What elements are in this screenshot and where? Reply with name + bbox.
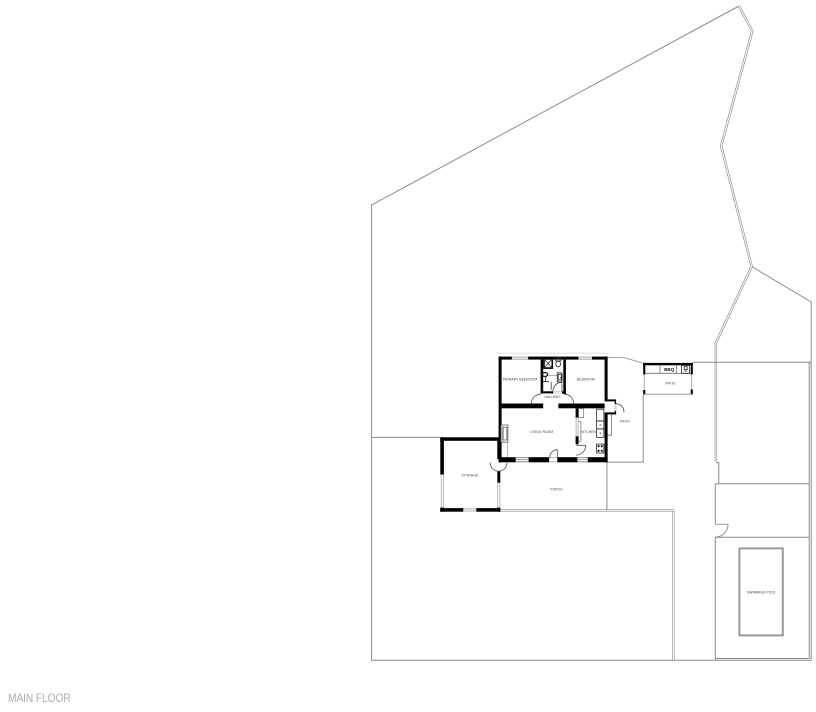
svg-text:KITCHEN: KITCHEN	[581, 430, 597, 434]
svg-text:HALLWAY: HALLWAY	[544, 395, 561, 399]
svg-text:BBQ: BBQ	[664, 367, 675, 372]
svg-text:BEDROOM: BEDROOM	[577, 378, 595, 382]
svg-text:SWIMMING POOL: SWIMMING POOL	[747, 591, 776, 595]
svg-text:MAIN FLOOR: MAIN FLOOR	[8, 692, 71, 705]
svg-text:PRIMARY BEDROOM: PRIMARY BEDROOM	[503, 378, 538, 382]
svg-text:STORAGE: STORAGE	[461, 473, 478, 477]
svg-text:PATIO: PATIO	[620, 419, 630, 423]
svg-text:LIVING ROOM: LIVING ROOM	[530, 430, 553, 434]
svg-text:PATIO: PATIO	[666, 381, 676, 385]
svg-text:PORCH: PORCH	[550, 488, 563, 492]
